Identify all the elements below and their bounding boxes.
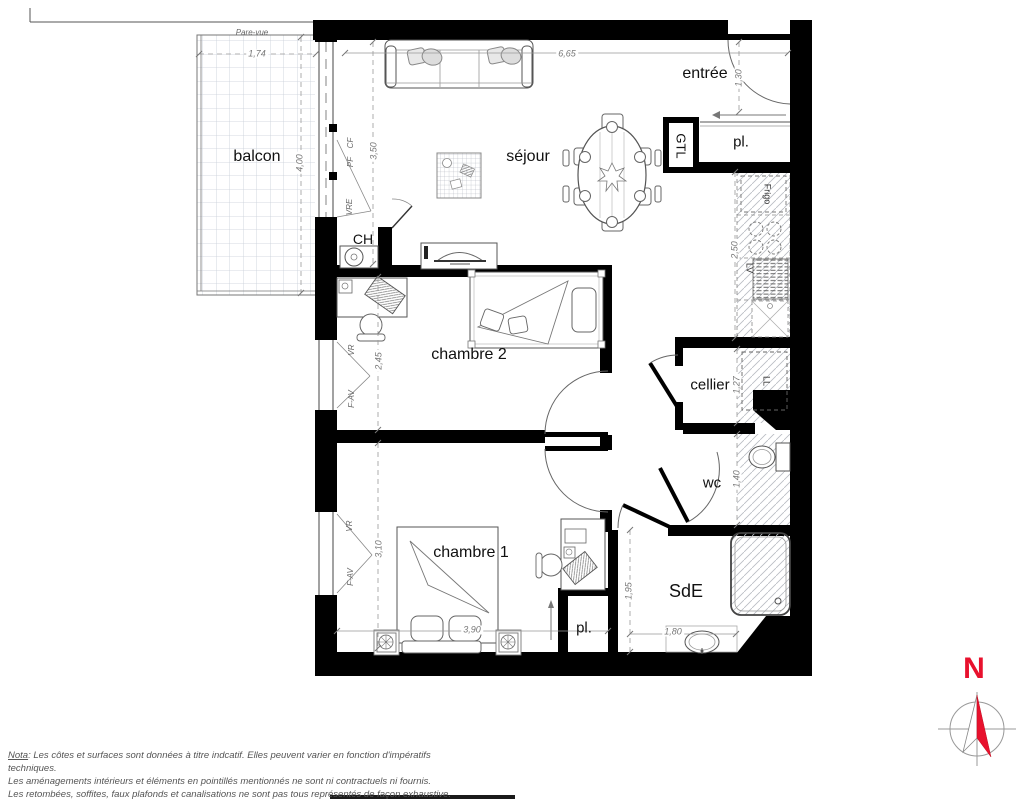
washer-label: LL bbox=[762, 376, 771, 386]
bay-window-sejour bbox=[315, 42, 371, 217]
dim-3-10: 3,10 bbox=[375, 538, 384, 560]
note-line-1-text: : Les côtes et surfaces sont données à t… bbox=[8, 750, 431, 774]
dim-1-95: 1,95 bbox=[625, 580, 634, 602]
north-label: N bbox=[963, 654, 985, 684]
room-label-entree: entrée bbox=[682, 66, 727, 82]
window-code-vre: VRE bbox=[346, 199, 354, 215]
rug bbox=[437, 153, 481, 198]
pare-vue-label: Pare-vue bbox=[236, 29, 268, 37]
gtl-label: GTL bbox=[675, 133, 688, 158]
note-line-1: Nota: Les côtes et surfaces sont données… bbox=[8, 749, 478, 775]
desk-chambre1 bbox=[536, 519, 605, 590]
dim-1-30: 1,30 bbox=[735, 67, 744, 89]
dishwasher-label: LV bbox=[745, 263, 754, 273]
window-code-pf: PF bbox=[347, 157, 355, 167]
nota-prefix: Nota bbox=[8, 750, 28, 761]
room-label-wc: wc bbox=[703, 476, 721, 491]
room-label-chambre1: chambre 1 bbox=[433, 545, 509, 561]
dim-4-00: 4,00 bbox=[296, 152, 305, 174]
dim-2-50: 2,50 bbox=[731, 239, 740, 261]
window-chambre1 bbox=[315, 512, 372, 595]
door-chambre2 bbox=[545, 371, 608, 437]
sofa bbox=[385, 40, 533, 88]
window-code-vr-ch1: VR bbox=[346, 520, 354, 531]
window-code-vr-ch2: VR bbox=[348, 344, 356, 355]
plan-notes: Nota: Les côtes et surfaces sont données… bbox=[8, 749, 478, 800]
nightstand-right bbox=[496, 630, 521, 655]
dim-2-45: 2,45 bbox=[375, 350, 384, 372]
window-code-cf: CF bbox=[347, 138, 355, 149]
closet-label-entree: pl. bbox=[733, 135, 749, 150]
dim-1-74: 1,74 bbox=[246, 50, 268, 59]
dining-table bbox=[563, 114, 661, 231]
floor-plan-page: Pare-vue 1,74 balcon 4,00 séjour 6,65 en… bbox=[0, 0, 1024, 800]
dim-1-40: 1,40 bbox=[733, 468, 742, 490]
north-compass bbox=[938, 692, 1016, 766]
dim-1-80: 1,80 bbox=[662, 628, 684, 637]
window-chambre2 bbox=[315, 340, 370, 410]
door-ch bbox=[392, 199, 412, 228]
floor-plan-drawing bbox=[0, 0, 1024, 800]
closet-label-chambre1: pl. bbox=[576, 621, 592, 636]
shower bbox=[731, 533, 790, 615]
room-label-sde: SdE bbox=[669, 582, 703, 600]
dishwasher bbox=[753, 259, 788, 299]
door-cellier bbox=[650, 355, 678, 408]
kitchen-sink-unit bbox=[752, 301, 788, 337]
bed-chambre2 bbox=[468, 270, 605, 348]
dim-3-50: 3,50 bbox=[370, 140, 379, 162]
fridge-label: Frigo bbox=[763, 184, 772, 205]
door-sde bbox=[618, 505, 672, 528]
dim-6-65: 6,65 bbox=[556, 50, 578, 59]
room-label-balcon: balcon bbox=[233, 149, 280, 165]
entry-closet-front bbox=[700, 111, 790, 126]
window-code-fav-ch2: F-AV bbox=[348, 390, 356, 408]
room-label-cellier: cellier bbox=[690, 378, 729, 393]
note-line-2: Les aménagements intérieurs et éléments … bbox=[8, 775, 478, 788]
tv-console bbox=[421, 243, 497, 269]
door-chambre1 bbox=[545, 446, 608, 512]
room-label-chambre2: chambre 2 bbox=[431, 347, 507, 363]
dim-3-90: 3,90 bbox=[461, 626, 483, 635]
dim-1-27: 1,27 bbox=[733, 374, 742, 396]
window-code-fav-ch1: F-AV bbox=[347, 568, 355, 586]
room-label-sejour: séjour bbox=[506, 149, 550, 165]
closet-arrow-chambre1 bbox=[548, 600, 554, 640]
note-line-3: Les retombées, soffites, faux plafonds e… bbox=[8, 788, 478, 800]
desk-chambre2 bbox=[337, 276, 407, 341]
room-label-ch: CH bbox=[353, 232, 373, 246]
